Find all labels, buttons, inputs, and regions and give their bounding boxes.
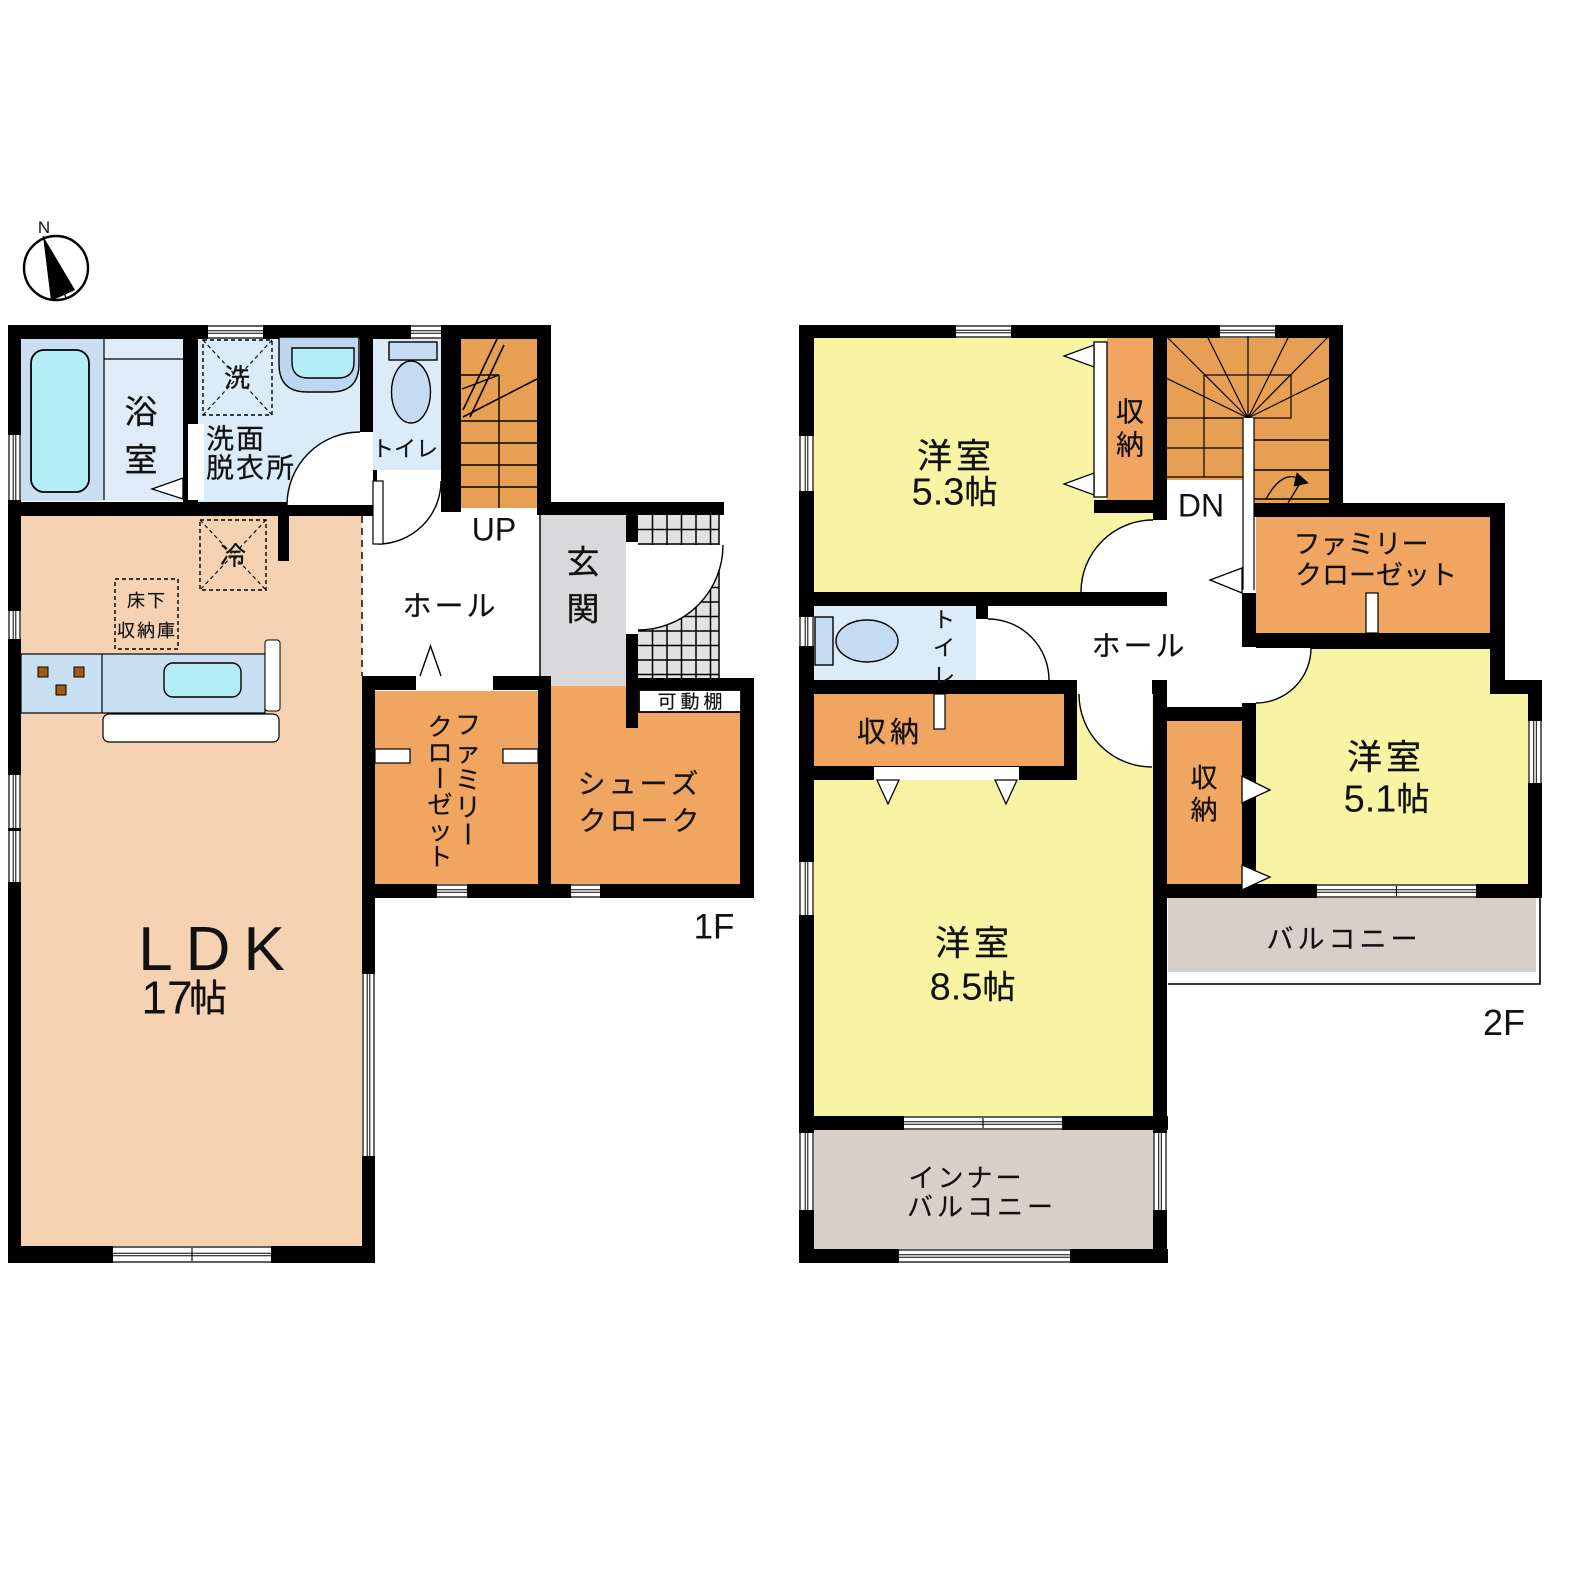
svg-text:5.1: 5.1	[1344, 779, 1397, 821]
svg-text:DN: DN	[1178, 488, 1224, 524]
svg-text:N: N	[38, 218, 50, 237]
svg-text:5.3: 5.3	[912, 472, 965, 514]
svg-text:17: 17	[141, 972, 192, 1024]
svg-text:2F: 2F	[1483, 1002, 1525, 1043]
svg-text:1F: 1F	[694, 908, 735, 947]
svg-text:8.5: 8.5	[930, 967, 983, 1009]
svg-text:UP: UP	[472, 512, 516, 548]
